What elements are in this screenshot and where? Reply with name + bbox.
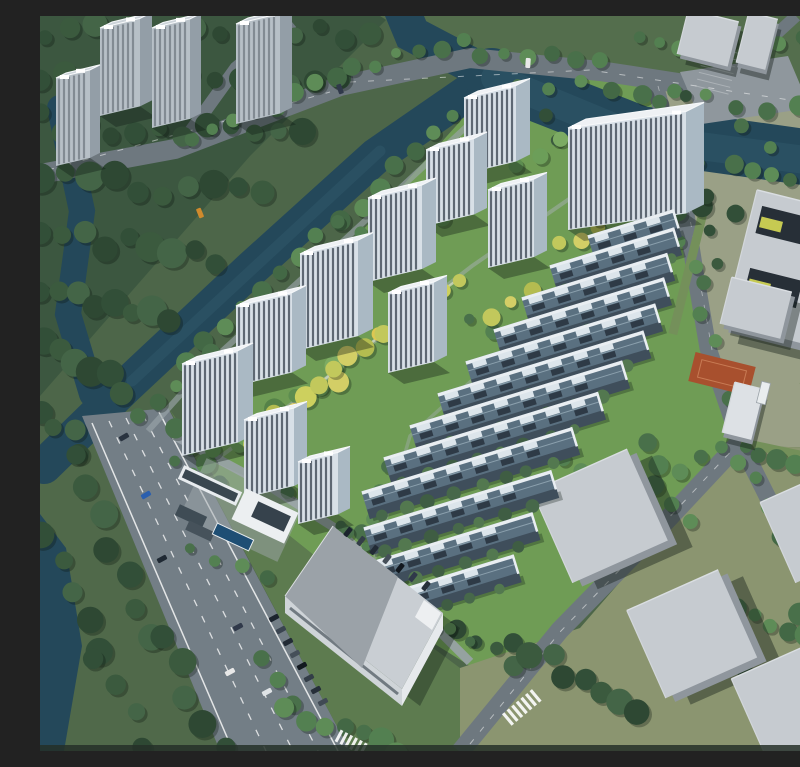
layer-vignette	[40, 745, 800, 751]
aerial-masterplan-rendering	[40, 16, 800, 751]
rendering-canvas	[40, 16, 800, 751]
